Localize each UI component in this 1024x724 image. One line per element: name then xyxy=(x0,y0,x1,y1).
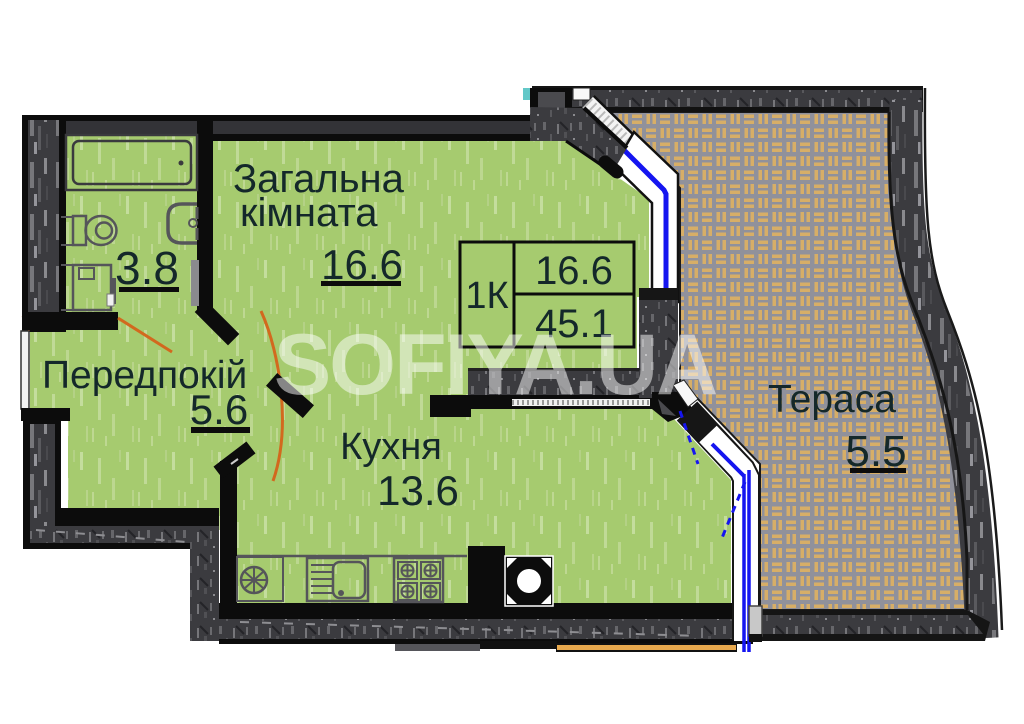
svg-text:3.8: 3.8 xyxy=(115,242,179,294)
svg-text:Тераса: Тераса xyxy=(768,378,896,421)
svg-text:16.6: 16.6 xyxy=(321,241,403,288)
svg-text:1К: 1К xyxy=(465,275,508,317)
svg-text:16.6: 16.6 xyxy=(535,249,613,293)
svg-text:Кухня: Кухня xyxy=(340,426,442,468)
svg-text:кімната: кімната xyxy=(240,191,378,235)
svg-text:13.6: 13.6 xyxy=(377,467,459,514)
svg-text:SOFIYA.UA: SOFIYA.UA xyxy=(274,317,716,413)
svg-text:5.6: 5.6 xyxy=(190,386,248,433)
